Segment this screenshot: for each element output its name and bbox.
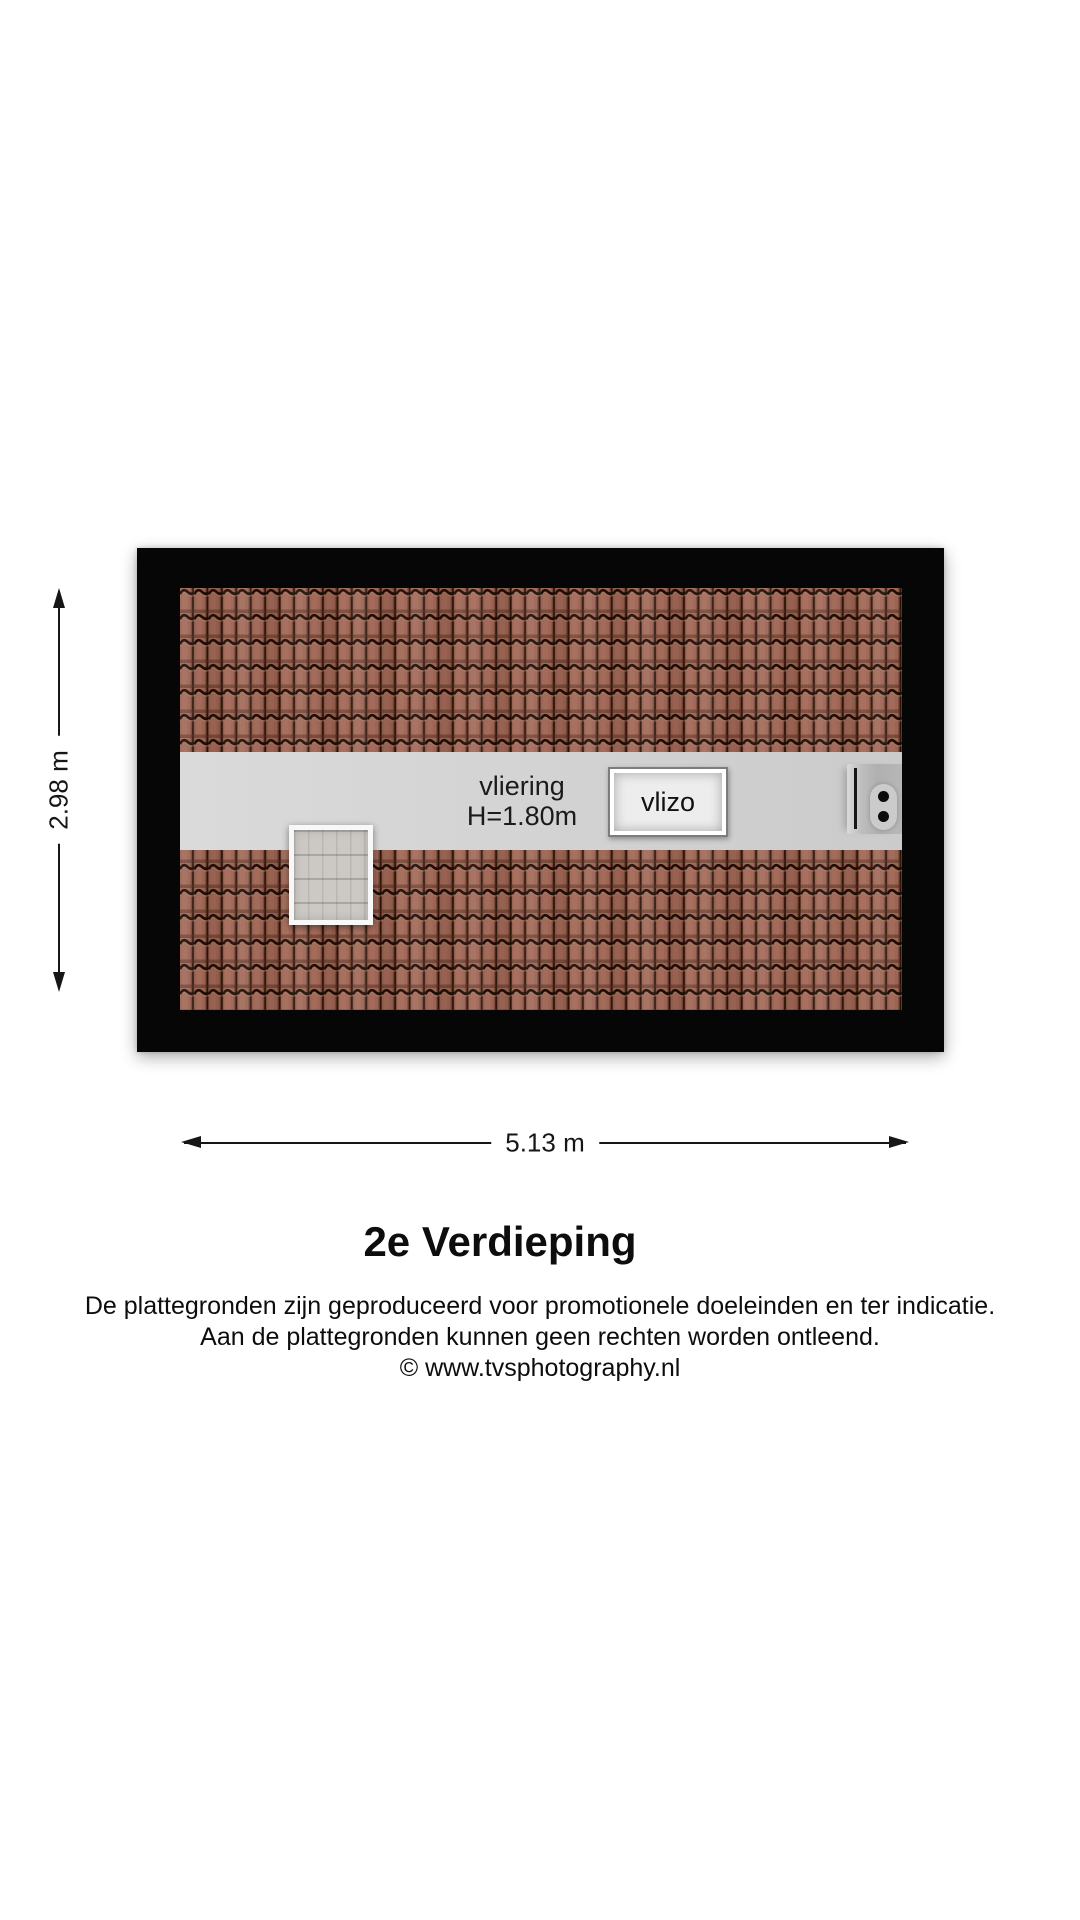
skylight-window — [289, 825, 373, 925]
arrow-left-icon — [181, 1136, 201, 1148]
door-edge-line — [854, 768, 857, 829]
door-knob-plate — [870, 784, 897, 830]
room-name: vliering — [422, 771, 622, 801]
copyright-line: © www.tvsphotography.nl — [0, 1353, 1080, 1384]
dimension-height: 2.98 m — [45, 588, 73, 992]
arrow-right-icon — [889, 1136, 909, 1148]
disclaimer-line: De plattegronden zijn geproduceerd voor … — [0, 1291, 1080, 1322]
arrow-up-icon — [53, 588, 65, 608]
page-title: 2e Verdieping — [0, 1218, 1040, 1266]
loft-hatch-box: vlizo — [608, 767, 728, 837]
dimension-width: 5.13 m — [181, 1129, 909, 1159]
room-height-label: H=1.80m — [422, 801, 622, 831]
floor-plan-inner: vliering H=1.80m vlizo — [180, 588, 902, 1010]
door-element — [847, 764, 902, 834]
knob-dot — [878, 791, 889, 802]
knob-dot — [878, 811, 889, 822]
loft-hatch-inner: vlizo — [614, 773, 722, 831]
loft-hatch-label: vlizo — [641, 787, 695, 818]
arrow-down-icon — [53, 972, 65, 992]
floor-plan: vliering H=1.80m vlizo — [137, 548, 944, 1052]
room-label: vliering H=1.80m — [422, 771, 622, 831]
dimension-width-label: 5.13 m — [491, 1128, 599, 1159]
disclaimer: De plattegronden zijn geproduceerd voor … — [0, 1291, 1080, 1384]
dimension-height-label: 2.98 m — [43, 736, 74, 844]
disclaimer-line: Aan de plattegronden kunnen geen rechten… — [0, 1322, 1080, 1353]
